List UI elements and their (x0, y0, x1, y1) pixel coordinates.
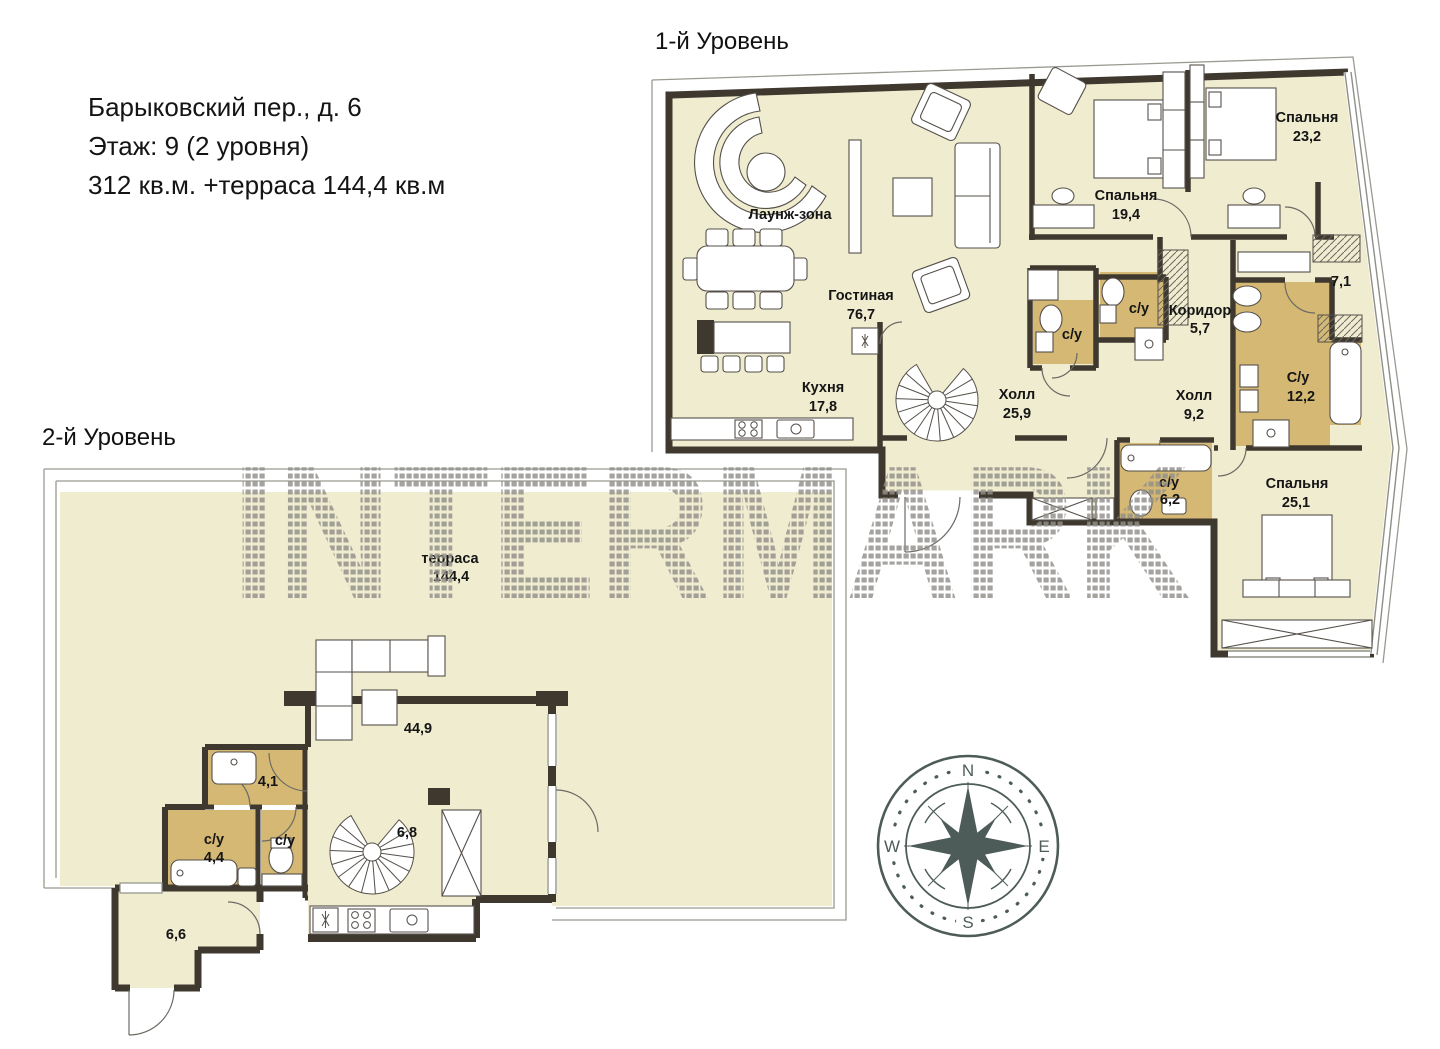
room-area-living2: 44,9 (404, 721, 432, 737)
compass-south-label: S (962, 913, 973, 932)
room-label-bath2: с/у (204, 832, 224, 848)
room-area-entry: 6,6 (166, 927, 186, 943)
room-area-bedroom1: 19,4 (1112, 207, 1140, 223)
wall-stub (428, 788, 450, 805)
room-label-bedroom1: Спальня (1095, 188, 1158, 204)
compass-east-label: E (1038, 837, 1049, 856)
room-label-bath-master: С/у (1287, 370, 1310, 386)
level2-title: 2-й Уровень (42, 424, 176, 452)
room-label-hall-main: Холл (999, 387, 1035, 403)
room-label-hall-small: Холл (1176, 388, 1212, 404)
room-area-bath2: 4,4 (204, 850, 224, 866)
room-area-wardrobe: 7,1 (1331, 274, 1351, 290)
room-label-bath-small1: с/у (1129, 301, 1149, 317)
floorplan-page: Барыковский пер., д. 6 Этаж: 9 (2 уровня… (0, 0, 1440, 1049)
room-label-wc2: с/у (275, 833, 295, 849)
listing-header: Барыковский пер., д. 6 Этаж: 9 (2 уровня… (88, 88, 445, 205)
room-label-corridor: Коридор (1169, 303, 1232, 319)
room-area-bedroom2: 23,2 (1293, 129, 1321, 145)
bar-pier (697, 320, 714, 354)
address-line: Барыковский пер., д. 6 (88, 88, 445, 127)
room-area-corridor: 5,7 (1190, 321, 1210, 337)
area-line: 312 кв.м. +терраса 144,4 кв.м (88, 166, 445, 205)
compass-west-label: W (884, 837, 900, 856)
room-label-bedroom2: Спальня (1276, 110, 1339, 126)
room-area-living: 76,7 (847, 307, 875, 323)
level1-title: 1-й Уровень (655, 28, 789, 56)
room-area-kitchen: 17,8 (809, 399, 837, 415)
room-area-bath-master: 12,2 (1287, 389, 1315, 405)
room-label-bath-small2: с/у (1062, 327, 1082, 343)
room-area-stairroom: 6,8 (397, 825, 417, 841)
floor-line: Этаж: 9 (2 уровня) (88, 127, 445, 166)
room-label-lounge: Лаунж-зона (748, 207, 832, 223)
room-area-hall-main: 25,9 (1003, 406, 1031, 422)
room-label-bedroom3: Спальня (1266, 476, 1329, 492)
room-label-living: Гостиная (828, 288, 894, 304)
room-area-bedroom3: 25,1 (1282, 495, 1310, 511)
intermark-watermark: INTERMARK (232, 427, 1192, 639)
compass-north-label: N (962, 761, 974, 780)
compass-rose: N S W E (878, 756, 1058, 936)
room-label-kitchen: Кухня (802, 380, 844, 396)
room-area-hall2: 4,1 (258, 774, 278, 790)
compass-star (908, 786, 1028, 906)
pillar-left (284, 691, 318, 706)
room-area-hall-small: 9,2 (1184, 407, 1204, 423)
pillar-right (536, 691, 568, 706)
